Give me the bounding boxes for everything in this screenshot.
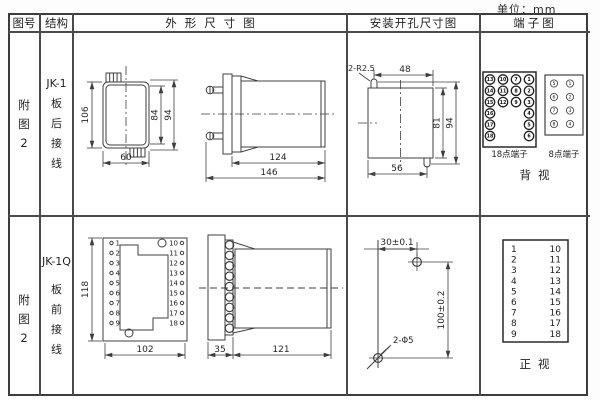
svg-text:5: 5: [527, 122, 530, 128]
svg-text:18: 18: [169, 320, 178, 328]
svg-text:10: 10: [169, 240, 178, 248]
structure-line: 板: [40, 94, 73, 114]
dim-label: 48: [399, 65, 411, 75]
svg-text:6: 6: [553, 95, 556, 101]
svg-text:12: 12: [500, 100, 507, 106]
svg-text:2: 2: [116, 250, 120, 258]
svg-text:15: 15: [550, 298, 561, 308]
svg-text:14: 14: [169, 280, 178, 288]
slot-radius-label: 2-R2.5: [348, 63, 375, 73]
svg-text:3: 3: [116, 260, 120, 268]
svg-text:10: 10: [550, 245, 562, 255]
fig-no-line: 图: [8, 310, 40, 329]
structure-line: 接: [40, 134, 73, 154]
svg-text:12: 12: [169, 260, 178, 268]
fig-no-line: 附: [8, 96, 40, 115]
svg-text:5: 5: [511, 287, 517, 297]
dim-label: 146: [260, 168, 277, 178]
structure-line: 接: [40, 320, 73, 340]
dim-label: 94: [446, 117, 456, 129]
fig-no-line: 2: [8, 329, 40, 348]
svg-text:7: 7: [116, 300, 120, 308]
dim-label: 35: [214, 345, 225, 355]
svg-text:13: 13: [169, 270, 178, 278]
svg-text:9: 9: [511, 330, 517, 340]
jk1-terminal-diagram: 13 10 7 1 14 11 8 2 15 12 9 3 16 4 17 5 …: [480, 32, 590, 216]
svg-text:14: 14: [487, 89, 494, 95]
dim-label: 56: [391, 164, 403, 174]
svg-text:16: 16: [487, 111, 494, 117]
view-label-front: 正视: [520, 357, 557, 371]
svg-text:7: 7: [514, 77, 517, 83]
svg-text:1: 1: [511, 245, 517, 255]
dim-label: 102: [136, 345, 153, 355]
svg-text:11: 11: [500, 89, 507, 95]
jk1q-outline-drawing: 1 2 3 4 5 6 7 8 9 10 11 12 13 14 15 16 1…: [73, 216, 347, 397]
svg-text:16: 16: [169, 300, 178, 308]
svg-text:13: 13: [487, 77, 494, 83]
svg-text:6: 6: [511, 298, 517, 308]
svg-text:18: 18: [487, 134, 494, 140]
svg-text:4: 4: [527, 111, 531, 117]
structure-line: 板: [40, 280, 73, 300]
svg-text:10: 10: [500, 77, 507, 83]
svg-text:13: 13: [550, 277, 561, 287]
jk1-outline-drawing: 106 84 94 60 124: [73, 32, 347, 216]
svg-text:6: 6: [116, 290, 121, 298]
svg-text:4: 4: [116, 270, 121, 278]
structure-line: 后: [40, 114, 73, 134]
jk1q-front-view: 1 2 3 4 5 6 7 8 9 10 11 12 13 14 15 16 1…: [81, 238, 187, 359]
jk1-cutout-shape: [358, 79, 433, 167]
header-mounting: 安装开孔尺寸图: [347, 16, 480, 31]
structure-line: 线: [40, 154, 73, 174]
svg-text:1: 1: [527, 77, 530, 83]
svg-text:2: 2: [569, 95, 572, 101]
svg-text:16: 16: [550, 309, 562, 319]
svg-text:14: 14: [550, 287, 562, 297]
structure-row2: JK-1Q 板 前 接 线: [40, 252, 73, 360]
svg-text:1: 1: [116, 240, 120, 248]
dim-label: 60: [120, 153, 132, 163]
terminal-panel-18pt: 13 10 7 1 14 11 8 2 15 12 9 3 16 4 17 5 …: [483, 72, 536, 147]
fig-no-row1: 附 图 2: [8, 96, 40, 153]
svg-text:7: 7: [553, 108, 556, 114]
dim-label: 121: [272, 345, 289, 355]
jk1-side-view: 124 146: [201, 74, 337, 182]
svg-text:18: 18: [550, 330, 562, 340]
fig-no-line: 图: [8, 115, 40, 134]
svg-text:2: 2: [511, 256, 517, 266]
svg-text:3: 3: [527, 100, 530, 106]
jk1-mounting-drawing: 48 2-R2.5 81 94 56: [347, 32, 480, 216]
svg-text:4: 4: [511, 277, 517, 287]
header-structure: 结构: [40, 16, 73, 31]
svg-text:6: 6: [527, 134, 531, 140]
svg-text:5: 5: [116, 280, 120, 288]
svg-text:3: 3: [511, 266, 517, 276]
fig-no-line: 2: [8, 134, 40, 153]
dim-label: 81: [433, 117, 443, 128]
jk1q-terminal-diagram: 110 211 312 413 514 615 716 817 918 正视: [480, 216, 590, 397]
terminal-table-18pt-front: 110 211 312 413 514 615 716 817 918: [503, 240, 568, 342]
structure-line: JK-1Q: [40, 252, 73, 272]
dim-label: 94: [164, 109, 174, 121]
hole-diameter-label: 2-Φ5: [393, 336, 414, 346]
svg-text:9: 9: [514, 100, 518, 106]
jk1q-side-view: 35 121: [199, 235, 343, 359]
svg-text:8: 8: [116, 310, 120, 318]
structure-line: 线: [40, 340, 73, 360]
svg-text:17: 17: [550, 319, 561, 329]
svg-text:2: 2: [527, 89, 530, 95]
svg-text:3: 3: [569, 108, 572, 114]
jk1q-mounting-drawing: 30±0.1 100±0.2 2-Φ5: [347, 216, 480, 397]
header-outline: 外形尺寸图: [73, 16, 347, 31]
svg-text:5: 5: [553, 81, 556, 87]
fig-no-row2: 附 图 2: [8, 291, 40, 348]
structure-line: 前: [40, 300, 73, 320]
svg-text:15: 15: [169, 290, 178, 298]
dim-label: 124: [269, 153, 286, 163]
jk1q-mounting-holes: 30±0.1 100±0.2 2-Φ5: [364, 238, 453, 369]
svg-text:17: 17: [487, 122, 494, 128]
header-terminal: 端子图: [480, 16, 590, 31]
svg-text:17: 17: [169, 310, 178, 318]
dim-label: 100±0.2: [437, 290, 447, 329]
dim-label: 118: [81, 281, 91, 298]
header-fig-no: 图号: [8, 16, 40, 31]
fig-no-line: 附: [8, 291, 40, 310]
jk1-mounting-dims: 48 2-R2.5 81 94 56: [348, 63, 460, 178]
dim-label: 106: [81, 106, 91, 123]
svg-text:11: 11: [550, 256, 561, 266]
terminal-panel-8pt: 5 1 6 2 7 3 8 4: [545, 75, 583, 135]
svg-text:12: 12: [550, 266, 561, 276]
structure-row1: JK-1 板 后 接 线: [40, 74, 73, 174]
svg-text:7: 7: [511, 309, 517, 319]
dim-label: 84: [151, 109, 161, 121]
svg-text:9: 9: [116, 320, 120, 328]
svg-text:4: 4: [569, 122, 572, 128]
svg-text:11: 11: [169, 250, 178, 258]
structure-line: JK-1: [40, 74, 73, 94]
jk1-front-view: 106 84 94 60: [81, 66, 178, 167]
label-18pt: 18点端子: [491, 149, 528, 160]
label-8pt: 8点端子: [549, 149, 580, 160]
drawing-sheet: 单位：mm 图号 结构 外形尺寸图 安装开孔尺寸图 端子图 附 图 2 JK-1…: [0, 0, 600, 400]
dim-label: 30±0.1: [380, 238, 413, 248]
svg-text:8: 8: [514, 89, 518, 95]
svg-text:8: 8: [511, 319, 517, 329]
svg-text:15: 15: [487, 100, 494, 106]
svg-text:8: 8: [553, 122, 556, 128]
view-label-rear: 背视: [520, 168, 557, 182]
svg-text:1: 1: [569, 81, 572, 87]
